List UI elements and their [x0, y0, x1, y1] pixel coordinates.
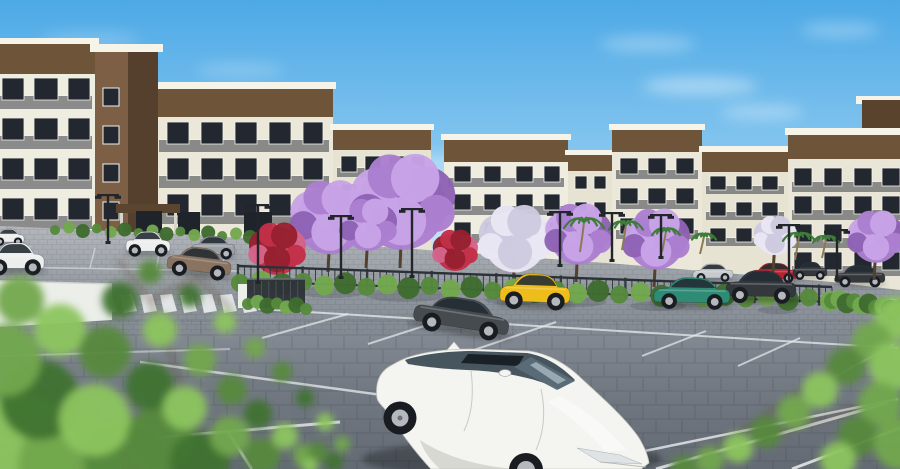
hedge-bush [378, 275, 398, 295]
lamp-head-left [399, 210, 406, 213]
window [201, 158, 223, 180]
window [594, 176, 606, 189]
hedge-bush [587, 280, 609, 302]
lamp-pole [660, 214, 662, 259]
window [341, 156, 357, 172]
parapet [785, 128, 900, 135]
hedge-bush [441, 279, 461, 299]
car-highlight [795, 269, 825, 271]
blurred-leaves [59, 384, 131, 456]
car-wheel-rim [842, 279, 847, 284]
window [676, 158, 694, 174]
hedge-bush [118, 223, 132, 237]
window [620, 188, 638, 204]
car-highlight [0, 235, 22, 237]
hedge-bush [610, 286, 628, 304]
tree-canopy [870, 210, 896, 236]
planter-hedge [300, 303, 312, 315]
lamp-head-right [115, 196, 122, 199]
parapet [0, 38, 99, 44]
window [34, 158, 58, 180]
window [484, 166, 501, 182]
brown-band [612, 130, 702, 152]
lamp-head-left [95, 196, 102, 199]
lamp-head-right [419, 210, 426, 213]
window [648, 158, 666, 174]
blurred-leaves [163, 386, 207, 430]
window [201, 122, 223, 144]
window [575, 176, 587, 189]
architectural-rendering [0, 0, 900, 469]
brown-band [788, 135, 900, 159]
blurred-leaves [334, 436, 350, 452]
tower-cap [90, 44, 163, 52]
parapet [152, 82, 336, 89]
blurred-leaves [723, 433, 753, 463]
car-wheel-rim [723, 275, 727, 279]
window [34, 78, 58, 100]
lamp-pole [257, 204, 259, 284]
window [269, 194, 291, 216]
window [68, 198, 90, 220]
lamp-head-left [648, 216, 655, 219]
window [201, 194, 223, 216]
tree-canopy [355, 222, 381, 248]
brown-band [333, 130, 431, 150]
tower-window [103, 164, 119, 182]
hedge-bush [484, 282, 502, 300]
window [736, 228, 752, 242]
lamp-pole [340, 215, 342, 279]
hedge-bush [461, 276, 483, 298]
blurred-leaves [217, 375, 247, 405]
building-left-a [0, 38, 99, 236]
tree-canopy [362, 198, 388, 224]
parapet [609, 124, 705, 130]
cloud [196, 63, 284, 77]
window [303, 122, 323, 144]
hedge-bush [50, 225, 60, 235]
side-mirror [499, 370, 511, 377]
tree-canopy [498, 235, 532, 269]
car-wheel-rim [158, 247, 164, 253]
window [736, 202, 752, 216]
blurred-leaves [245, 338, 265, 358]
window [620, 158, 638, 174]
window [34, 198, 58, 220]
blurred-leaves [79, 326, 131, 378]
window [516, 166, 533, 182]
car-highlight [129, 241, 168, 243]
blurred-leaves [210, 416, 250, 456]
car-highlight [695, 271, 730, 273]
brown-band [444, 140, 568, 162]
brown-band [702, 152, 788, 172]
blurred-leaves [138, 260, 162, 284]
window [676, 188, 694, 204]
hedge-bush [421, 277, 439, 295]
window [68, 158, 90, 180]
car-highlight [194, 245, 233, 247]
hedge-bush [188, 229, 200, 241]
blurred-leaves [102, 282, 138, 318]
blurred-leaves [179, 285, 201, 307]
window [710, 176, 726, 190]
cloud [600, 36, 696, 52]
window [454, 166, 471, 182]
parapet [441, 134, 571, 140]
brown-band [0, 44, 96, 74]
hedge-bush [357, 278, 375, 296]
window [269, 122, 291, 144]
lamp-pole [836, 229, 838, 281]
window [794, 168, 812, 186]
window [167, 158, 189, 180]
blurred-leaves [143, 313, 177, 347]
lamp-head-right [265, 206, 272, 209]
brown-band [568, 155, 612, 171]
tree-canopy [863, 234, 889, 260]
hedge-bush [92, 224, 102, 234]
window [824, 252, 842, 270]
lamp-head-right [668, 216, 675, 219]
blurred-leaves [184, 344, 216, 376]
lamp-pole [611, 212, 613, 262]
tree-canopy [563, 231, 594, 262]
window [454, 194, 471, 210]
hedge-bush [105, 226, 117, 238]
blurred-leaves [316, 413, 334, 431]
car-wheel-rim [132, 247, 138, 253]
blurred-leaves [272, 423, 298, 449]
cloud [642, 77, 758, 95]
blurred-leaves [244, 400, 272, 428]
window [2, 118, 24, 140]
lamp-head-left [245, 206, 252, 209]
window [544, 166, 560, 182]
brown-band [155, 89, 333, 117]
lamp-pole [559, 211, 561, 267]
window [235, 158, 257, 180]
hedge-bush [175, 227, 185, 237]
hedge-bush [398, 277, 420, 299]
window [824, 168, 842, 186]
window [824, 196, 842, 214]
window [794, 196, 812, 214]
lamp-head-right [567, 213, 574, 216]
car-wheel-rim [223, 251, 229, 257]
cloud [800, 23, 880, 37]
window [167, 122, 189, 144]
lamp-head-right [844, 231, 851, 234]
lamp-head-left [776, 226, 783, 229]
tree-canopy [507, 205, 541, 239]
lamp-head-left [599, 214, 606, 217]
blurred-leaves [214, 311, 236, 333]
blurred-leaves [296, 389, 314, 407]
blurred-leaves [272, 362, 292, 382]
window [34, 118, 58, 140]
hedge-bush [230, 228, 242, 240]
tree-canopy [271, 222, 297, 248]
window [2, 158, 24, 180]
car-wheel-rim [29, 263, 37, 271]
lamp-pole [788, 224, 790, 286]
tree-canopy [391, 154, 439, 202]
car-highlight [0, 255, 41, 257]
window [2, 78, 24, 100]
lamp-head-left [328, 217, 335, 220]
car-wheel-rim [798, 273, 802, 277]
lamp-head-left [547, 213, 554, 216]
car-wheel-rim [818, 273, 822, 277]
tree-canopy [765, 234, 785, 254]
window [303, 158, 323, 180]
scene-canvas [0, 0, 900, 469]
lamp-head-right [619, 214, 626, 217]
window [68, 118, 90, 140]
window [2, 198, 24, 220]
hedge-bush [334, 272, 356, 294]
window [269, 158, 291, 180]
lamp-pole [411, 208, 413, 278]
parapet [699, 146, 791, 152]
tree-canopy [445, 248, 466, 269]
lamp-head-right [796, 226, 803, 229]
parapet [565, 150, 615, 155]
window [762, 202, 778, 216]
window [854, 168, 872, 186]
window [736, 176, 752, 190]
hedge-bush [63, 222, 75, 234]
rear-wheel-hub [398, 416, 403, 421]
parapet [330, 124, 434, 130]
window [882, 168, 900, 186]
hedge-bush [314, 276, 334, 296]
tower-window [103, 126, 119, 144]
hedge-bush [630, 282, 650, 302]
tree-canopy [450, 230, 471, 251]
blurred-leaves [750, 416, 782, 448]
window [762, 176, 778, 190]
lamp-pole [107, 194, 109, 244]
window [544, 194, 560, 210]
window [68, 78, 90, 100]
window [648, 188, 666, 204]
tower-window [103, 88, 119, 106]
hedge-bush [76, 224, 90, 238]
lamp-head-right [348, 217, 355, 220]
window [710, 202, 726, 216]
lamp-head-left [824, 231, 831, 234]
blurred-leaves [34, 304, 86, 356]
blurred-leaves [777, 395, 811, 429]
window [235, 122, 257, 144]
cloud [720, 105, 804, 119]
tree-canopy [641, 236, 672, 267]
hedge-bush [800, 288, 818, 306]
